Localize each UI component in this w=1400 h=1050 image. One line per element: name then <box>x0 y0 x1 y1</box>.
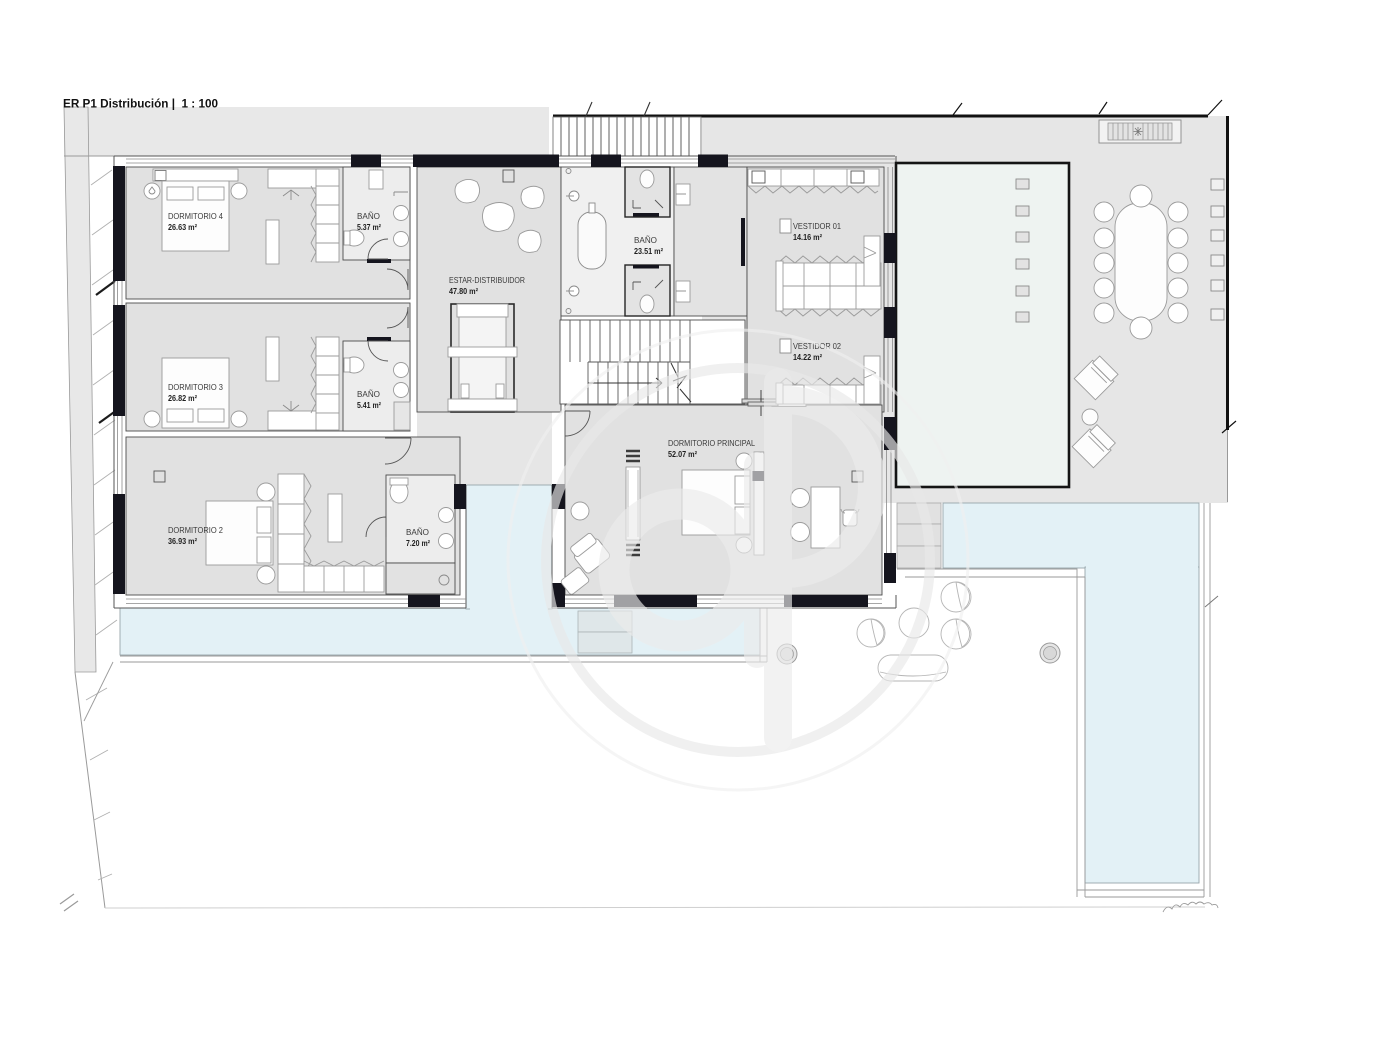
svg-text:7.20 m²: 7.20 m² <box>406 539 430 548</box>
svg-text:36.93 m²: 36.93 m² <box>168 537 197 546</box>
svg-text:DORMITORIO PRINCIPAL: DORMITORIO PRINCIPAL <box>668 438 755 448</box>
svg-text:26.82 m²: 26.82 m² <box>168 394 197 403</box>
svg-text:BAÑO: BAÑO <box>634 235 657 245</box>
svg-text:DORMITORIO 4: DORMITORIO 4 <box>168 211 223 221</box>
svg-text:BAÑO: BAÑO <box>357 389 380 399</box>
svg-text:5.41 m²: 5.41 m² <box>357 401 381 410</box>
svg-text:BAÑO: BAÑO <box>406 527 429 537</box>
svg-text:47.80 m²: 47.80 m² <box>449 287 478 296</box>
svg-text:26.63 m²: 26.63 m² <box>168 223 197 232</box>
svg-text:14.22 m²: 14.22 m² <box>793 353 822 362</box>
svg-text:BAÑO: BAÑO <box>357 211 380 221</box>
svg-text:23.51 m²: 23.51 m² <box>634 247 663 256</box>
svg-text:VESTIDOR 01: VESTIDOR 01 <box>793 221 841 231</box>
svg-text:ER P1 Distribución | 1 : 100: ER P1 Distribución | 1 : 100 <box>63 97 218 111</box>
svg-text:ESTAR-DISTRIBUIDOR: ESTAR-DISTRIBUIDOR <box>449 275 525 285</box>
svg-text:DORMITORIO 3: DORMITORIO 3 <box>168 382 223 392</box>
svg-text:52.07 m²: 52.07 m² <box>668 450 697 459</box>
svg-text:5.37 m²: 5.37 m² <box>357 223 381 232</box>
svg-text:14.16 m²: 14.16 m² <box>793 233 822 242</box>
svg-text:DORMITORIO 2: DORMITORIO 2 <box>168 525 223 535</box>
